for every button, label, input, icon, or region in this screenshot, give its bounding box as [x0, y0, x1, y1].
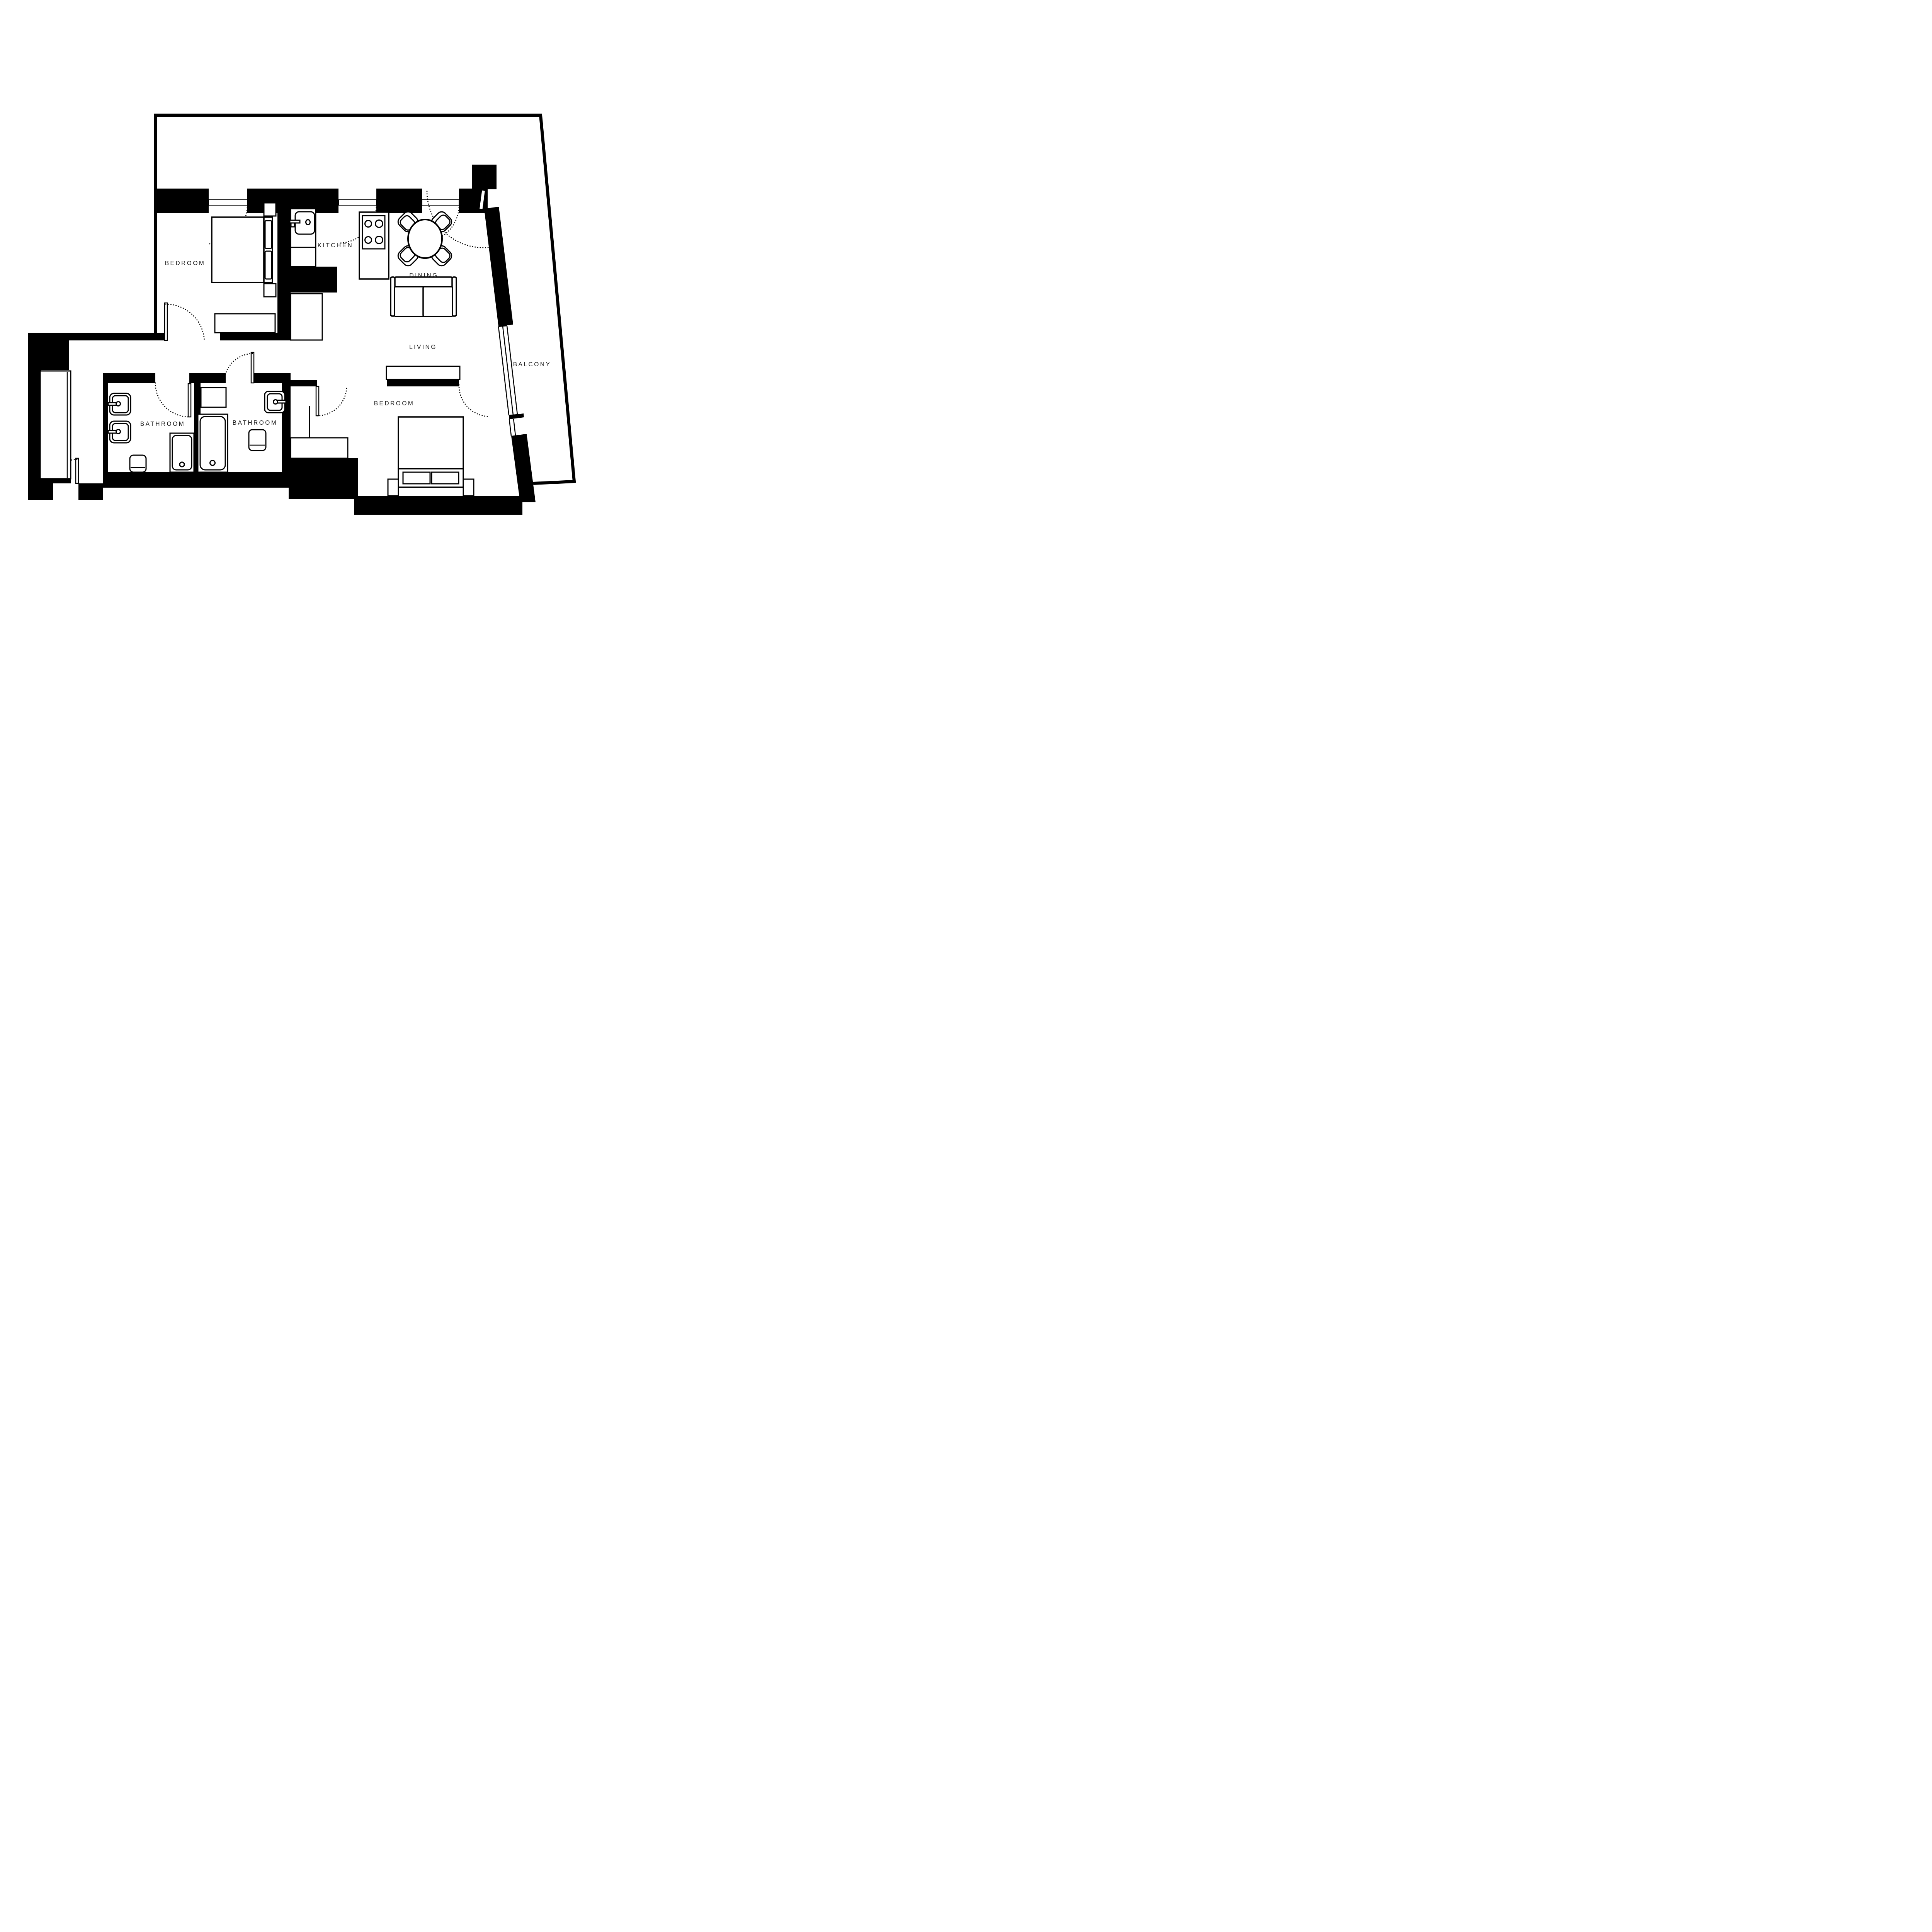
- wall-ne-corner-block: [472, 165, 497, 189]
- wall-east-angled-upper: [484, 207, 513, 327]
- bed-icon-bedroom1: [212, 203, 276, 297]
- bathtub-drain: [210, 461, 215, 466]
- sink-icon: [265, 391, 286, 413]
- bed-mattress: [212, 217, 264, 282]
- wall-bathrooms-top-1: [103, 373, 155, 383]
- nightstand: [463, 479, 474, 496]
- dining-set: [396, 210, 454, 268]
- wall-bathroom2-east: [282, 373, 291, 472]
- room-label-balcony: BALCONY: [513, 361, 551, 368]
- wall-hall-corner-chunk: [28, 333, 69, 370]
- window-glazing-line: [503, 326, 513, 415]
- window-glazing-line: [509, 419, 511, 436]
- window-glazing-line: [514, 419, 515, 435]
- bed-pillow: [265, 221, 272, 248]
- nightstand: [388, 479, 398, 496]
- shower-icon: [170, 433, 194, 472]
- stove-burner: [365, 237, 372, 243]
- wall-east-angled-bedroom2: [511, 434, 536, 502]
- wall-bedroom2-bottom: [354, 496, 522, 515]
- stove-burner: [376, 220, 383, 228]
- door-arc-closet-nook: [317, 386, 347, 416]
- closet-body: [40, 371, 71, 479]
- stove-burner: [376, 236, 383, 244]
- door-threshold-kitchen-terrace: [338, 200, 376, 205]
- wall-kitchen-chunk: [277, 267, 337, 293]
- sink-drain: [306, 220, 310, 225]
- wall-closet-nook-bottom: [289, 458, 354, 499]
- sink-drain: [116, 402, 121, 406]
- floor-plan-svg: BEDROOM KITCHEN DINING LIVING BALCONY BA…: [0, 0, 606, 606]
- sink-icon: [108, 421, 131, 443]
- room-label-bedroom-1: BEDROOM: [165, 260, 206, 267]
- wall-living-bedroom2-2: [387, 380, 459, 386]
- sink-faucet-base: [291, 223, 294, 227]
- stove-icon: [359, 212, 389, 279]
- door-leaf-bedroom1: [165, 303, 167, 340]
- door-leaf-closet-nook: [316, 386, 319, 416]
- wall-hall-west: [28, 370, 41, 483]
- door-arc-bathroom2: [224, 354, 252, 383]
- counter-lower: [291, 294, 322, 340]
- door-arc-bathroom1: [155, 383, 189, 417]
- bed-mattress: [398, 417, 463, 469]
- door-leaf-bathroom2: [251, 352, 254, 383]
- room-label-dining: DINING: [409, 272, 438, 279]
- window-glazing-line: [498, 327, 509, 415]
- bed-icon-bedroom2: [388, 417, 474, 496]
- wall-living-bedroom2-1: [291, 380, 317, 386]
- sink-icon: [108, 393, 131, 415]
- wall-closet-base: [40, 479, 71, 483]
- bed-pillow: [403, 472, 430, 484]
- door-threshold-dining-terrace: [422, 200, 459, 205]
- bathtub-icon: [198, 414, 228, 472]
- window-glazing-line: [507, 326, 517, 415]
- shower-drain: [180, 462, 184, 467]
- wall-top-3: [376, 189, 422, 213]
- sofa-cushion: [395, 287, 423, 316]
- door-threshold-bedroom1-terrace: [209, 200, 247, 205]
- sofa-cushion: [423, 287, 452, 316]
- bathroom2-fixtures: [198, 388, 286, 472]
- door-leaf-entry: [76, 458, 78, 483]
- wall-top-1: [156, 189, 209, 213]
- floor-plan-page: BEDROOM KITCHEN DINING LIVING BALCONY BA…: [0, 0, 606, 606]
- bed-pillow: [265, 251, 272, 279]
- room-label-bathroom-2: BATHROOM: [233, 420, 277, 426]
- bathroom1-fixtures: [108, 393, 194, 472]
- room-label-living: LIVING: [409, 344, 437, 350]
- room-label-bedroom-2: BEDROOM: [374, 400, 415, 407]
- wardrobe-bedroom1: [215, 314, 275, 333]
- balcony-window: [498, 326, 517, 436]
- wall-kitchen-divider-lower: [277, 293, 291, 340]
- wall-hall-bottom-left: [28, 483, 53, 500]
- wall-bathrooms-bottom: [103, 472, 291, 488]
- sideboard-living: [386, 366, 460, 379]
- door-leaf-bathroom1: [188, 384, 191, 417]
- wall-kitchen-divider-upper: [277, 189, 291, 267]
- door-arc-bedroom2: [459, 385, 490, 417]
- toilet-icon: [130, 455, 146, 472]
- toilet-bowl: [130, 455, 146, 472]
- stove-burner: [365, 221, 372, 227]
- sink-drain: [116, 430, 121, 434]
- dining-table-icon: [408, 219, 442, 258]
- room-label-bathroom-1: BATHROOM: [140, 421, 185, 427]
- toilet-icon: [249, 430, 266, 451]
- hall-closet: [40, 371, 71, 479]
- sink-drain: [274, 400, 278, 404]
- nightstand: [264, 203, 276, 216]
- bed-pillow: [432, 472, 459, 484]
- door-arc-bedroom1: [166, 304, 204, 342]
- nook-cabinet: [291, 438, 348, 458]
- room-label-kitchen: KITCHEN: [318, 242, 354, 249]
- wall-hall-bottom-right: [78, 483, 103, 500]
- toilet-bowl: [249, 430, 266, 451]
- washer-icon: [201, 388, 226, 407]
- nightstand: [264, 284, 276, 297]
- sofa-icon: [391, 277, 456, 316]
- wall-bathroom1-west: [103, 373, 108, 472]
